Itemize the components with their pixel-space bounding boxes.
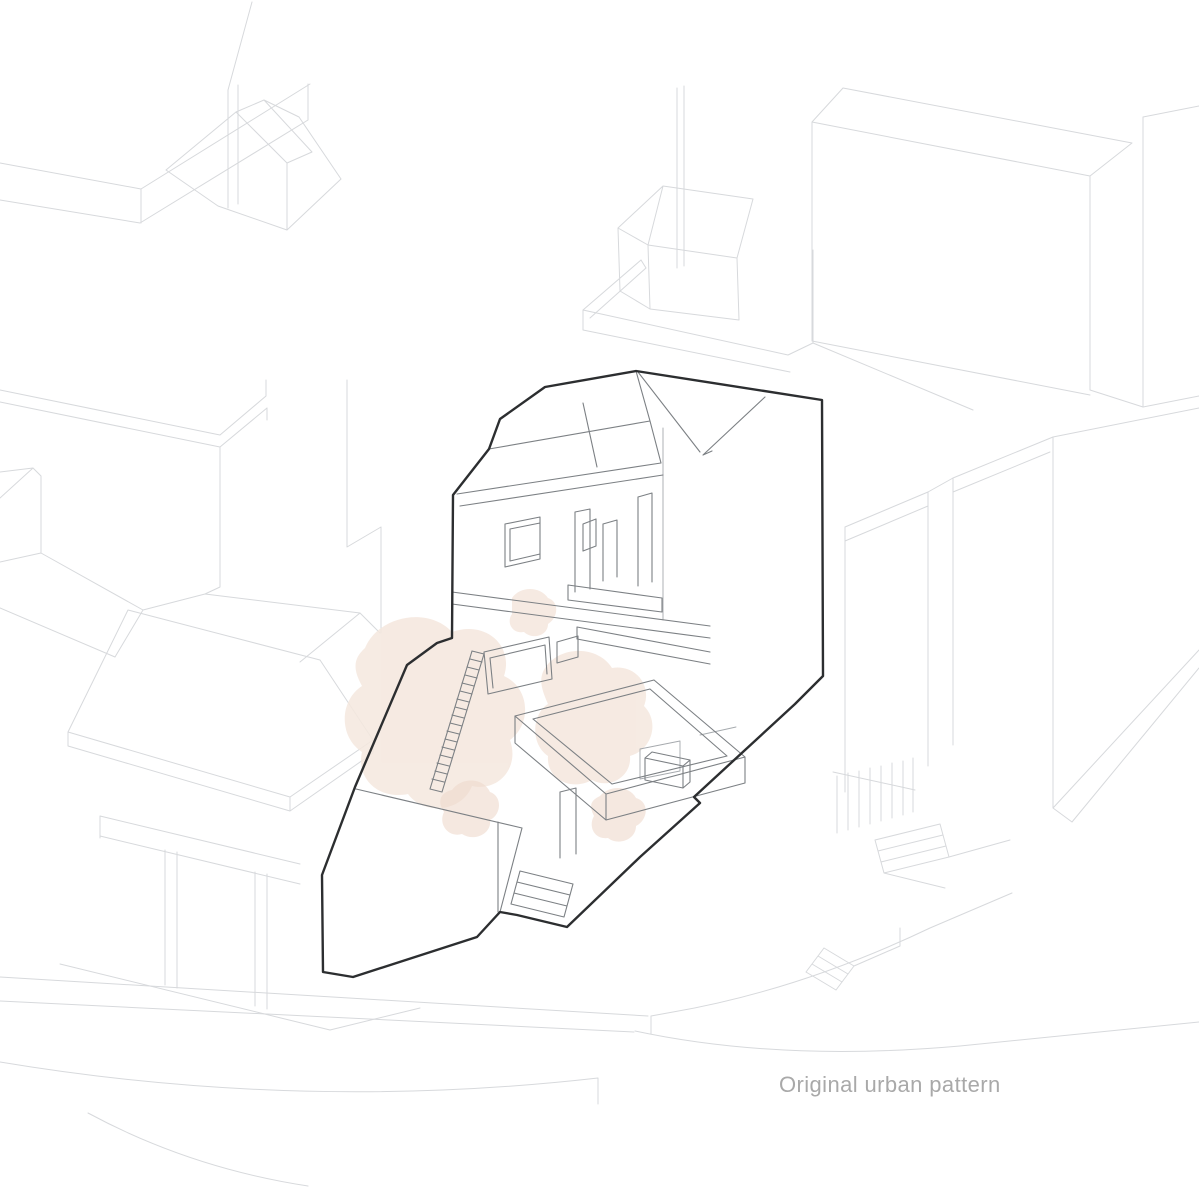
main-building-fine-lines [640, 428, 736, 779]
floor-band [452, 592, 710, 638]
context-block-topright [812, 88, 1199, 407]
context-corner-building [0, 380, 381, 662]
interior-cut-walls [575, 493, 652, 592]
context-block-topleft [0, 2, 310, 223]
street-sidewalk-left [0, 977, 648, 1186]
axonometric-drawing [0, 0, 1199, 1199]
tree-foliage [345, 589, 653, 808]
street-corner-steps [806, 928, 900, 990]
context-neighbor-right [833, 408, 1199, 888]
caption: Original urban pattern [779, 1072, 1001, 1098]
tree-blob-mid [535, 651, 652, 785]
tree-foliage-deep [440, 780, 645, 841]
roof-and-cornice [457, 371, 663, 506]
street-lines [0, 893, 1199, 1186]
entrance-steps [511, 871, 573, 917]
rear-roof-fold [638, 372, 765, 455]
street-curb-right [635, 893, 1199, 1051]
figure-canvas: Original urban pattern [0, 0, 1199, 1199]
context-buildings [0, 2, 1199, 1030]
facade-window [505, 517, 540, 567]
